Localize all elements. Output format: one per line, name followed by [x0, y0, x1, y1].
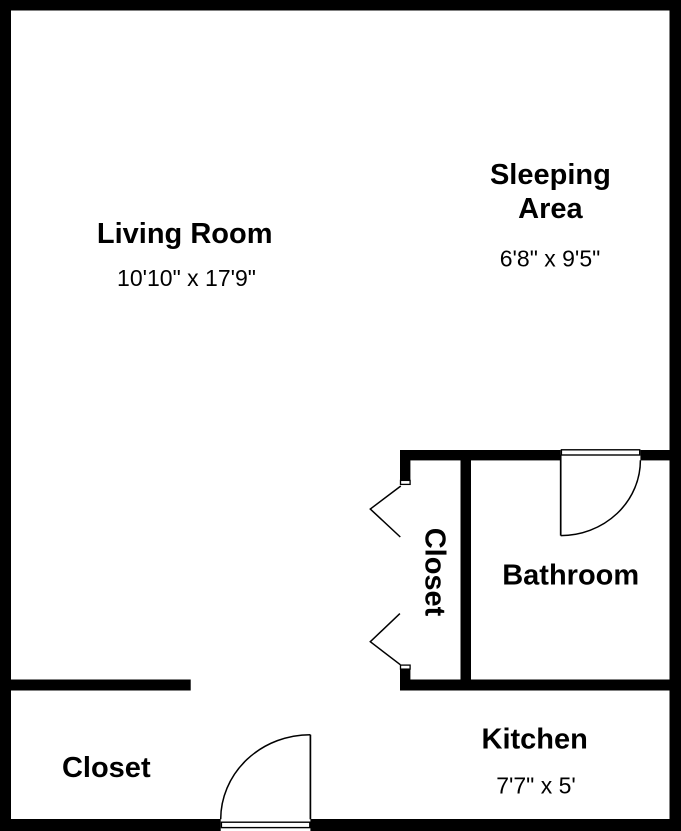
- svg-text:7'7" x 5': 7'7" x 5': [496, 773, 576, 799]
- svg-text:Living Room: Living Room: [97, 218, 273, 250]
- svg-text:Sleeping: Sleeping: [490, 159, 611, 191]
- svg-text:10'10" x 17'9": 10'10" x 17'9": [117, 265, 256, 291]
- svg-text:6'8" x 9'5": 6'8" x 9'5": [500, 245, 601, 271]
- svg-text:Kitchen: Kitchen: [482, 724, 588, 756]
- svg-text:Closet: Closet: [419, 528, 451, 617]
- svg-text:Closet: Closet: [62, 752, 151, 784]
- svg-text:Area: Area: [518, 193, 583, 225]
- svg-text:Bathroom: Bathroom: [502, 559, 639, 591]
